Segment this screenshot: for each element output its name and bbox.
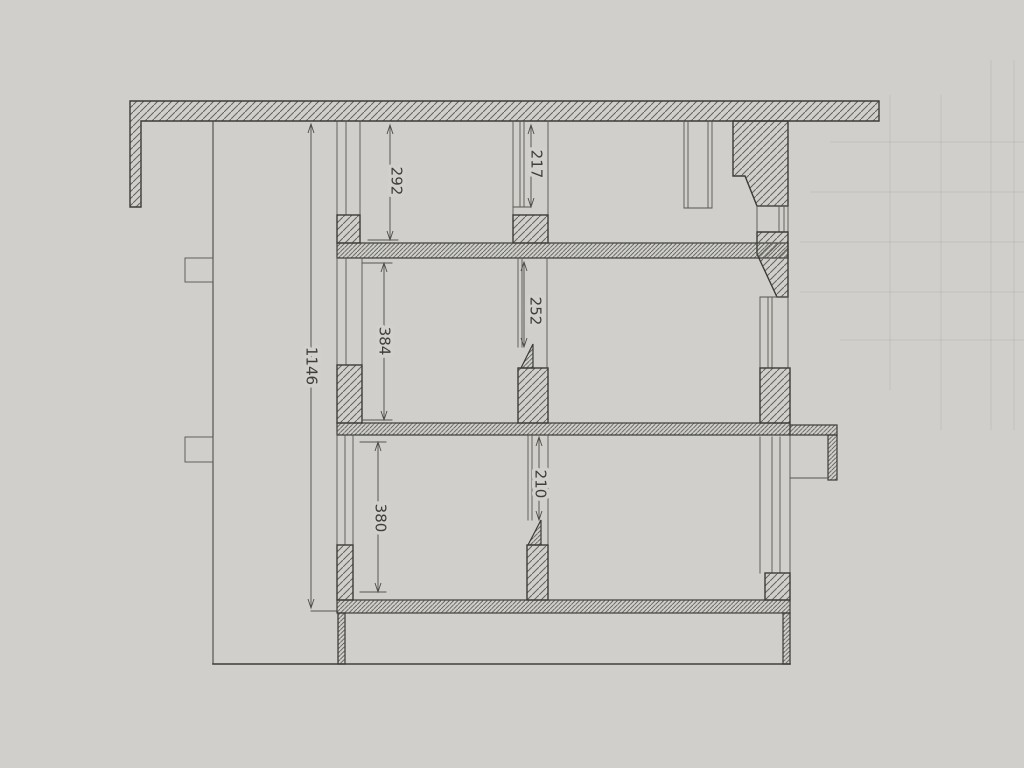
- dim-total-height: 1146: [303, 124, 321, 608]
- foundation: [338, 613, 790, 664]
- left-window-top: [337, 121, 360, 215]
- left-projection-outline: [185, 121, 790, 664]
- floor-slabs: [337, 243, 790, 613]
- left-sill-lower: [185, 437, 213, 462]
- left-sill-upper: [185, 258, 213, 282]
- dim-top-room-height: 292: [368, 125, 406, 240]
- left-window-middle: [337, 258, 362, 365]
- dim-bottom-opening-height: 210: [532, 437, 550, 520]
- dim-label-middle-room-height: 384: [376, 327, 394, 356]
- slab-upper: [337, 243, 788, 258]
- right-exterior-wall: [733, 121, 790, 600]
- right-spandrel: [757, 232, 788, 297]
- left-pier-top: [337, 215, 360, 243]
- interior-sill-wedge-middle: [521, 344, 533, 368]
- building-section-drawing: 1146 292 217 252 384: [0, 0, 1024, 768]
- dim-label-total-height: 1146: [303, 347, 321, 385]
- paper-photo-background: 1146 292 217 252 384: [0, 0, 1024, 768]
- dim-label-bottom-room-height: 380: [372, 504, 390, 533]
- canopy: [790, 425, 837, 480]
- interior-pier-middle: [518, 368, 548, 423]
- right-window-top: [757, 206, 788, 232]
- right-window-middle: [760, 297, 788, 368]
- left-pier-bottom: [337, 545, 353, 600]
- interior-sill-wedge-bottom: [528, 520, 541, 545]
- right-pier-top: [733, 121, 788, 206]
- right-window-bottom: [760, 435, 790, 573]
- slab-bottom: [337, 600, 790, 613]
- top-room-door-projection: [684, 121, 712, 208]
- interior-pier-bottom: [527, 545, 548, 600]
- dim-bottom-room-height: 380: [360, 442, 390, 592]
- dim-middle-room-height: 384: [362, 263, 394, 420]
- left-exterior-wall: [337, 121, 362, 600]
- interior-pier-top: [513, 215, 548, 243]
- dim-label-top-opening-height: 217: [528, 150, 546, 179]
- right-pier-middle: [760, 368, 790, 423]
- dim-label-bottom-opening-height: 210: [532, 470, 550, 499]
- interior-wall: [513, 121, 548, 600]
- left-window-bottom: [337, 435, 353, 545]
- left-pier-middle: [337, 365, 362, 423]
- dim-top-opening-height: 217: [528, 125, 546, 207]
- right-pier-bottom: [765, 573, 790, 600]
- dim-label-middle-opening-height: 252: [527, 297, 545, 326]
- slab-middle: [337, 423, 790, 435]
- dim-label-top-room-height: 292: [388, 167, 406, 196]
- dim-middle-opening-height: 252: [521, 262, 545, 347]
